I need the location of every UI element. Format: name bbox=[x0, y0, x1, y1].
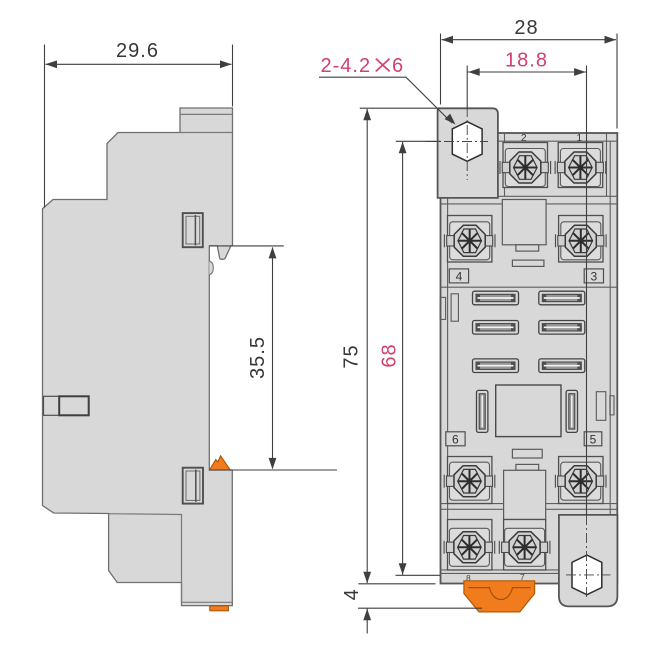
svg-text:1: 1 bbox=[577, 133, 583, 144]
svg-text:3: 3 bbox=[590, 270, 597, 284]
svg-text:6: 6 bbox=[392, 55, 404, 77]
svg-text:6: 6 bbox=[452, 432, 459, 446]
svg-text:18.8: 18.8 bbox=[505, 49, 548, 71]
svg-text:2: 2 bbox=[521, 133, 527, 144]
svg-text:5: 5 bbox=[590, 432, 597, 446]
svg-text:4: 4 bbox=[341, 588, 363, 600]
svg-text:4: 4 bbox=[456, 270, 463, 284]
svg-text:29.6: 29.6 bbox=[116, 40, 159, 62]
svg-text:28: 28 bbox=[514, 17, 538, 39]
svg-text:2-4.2: 2-4.2 bbox=[321, 55, 372, 77]
svg-text:35.5: 35.5 bbox=[247, 336, 269, 379]
svg-text:68: 68 bbox=[379, 343, 401, 367]
svg-text:75: 75 bbox=[341, 344, 363, 368]
